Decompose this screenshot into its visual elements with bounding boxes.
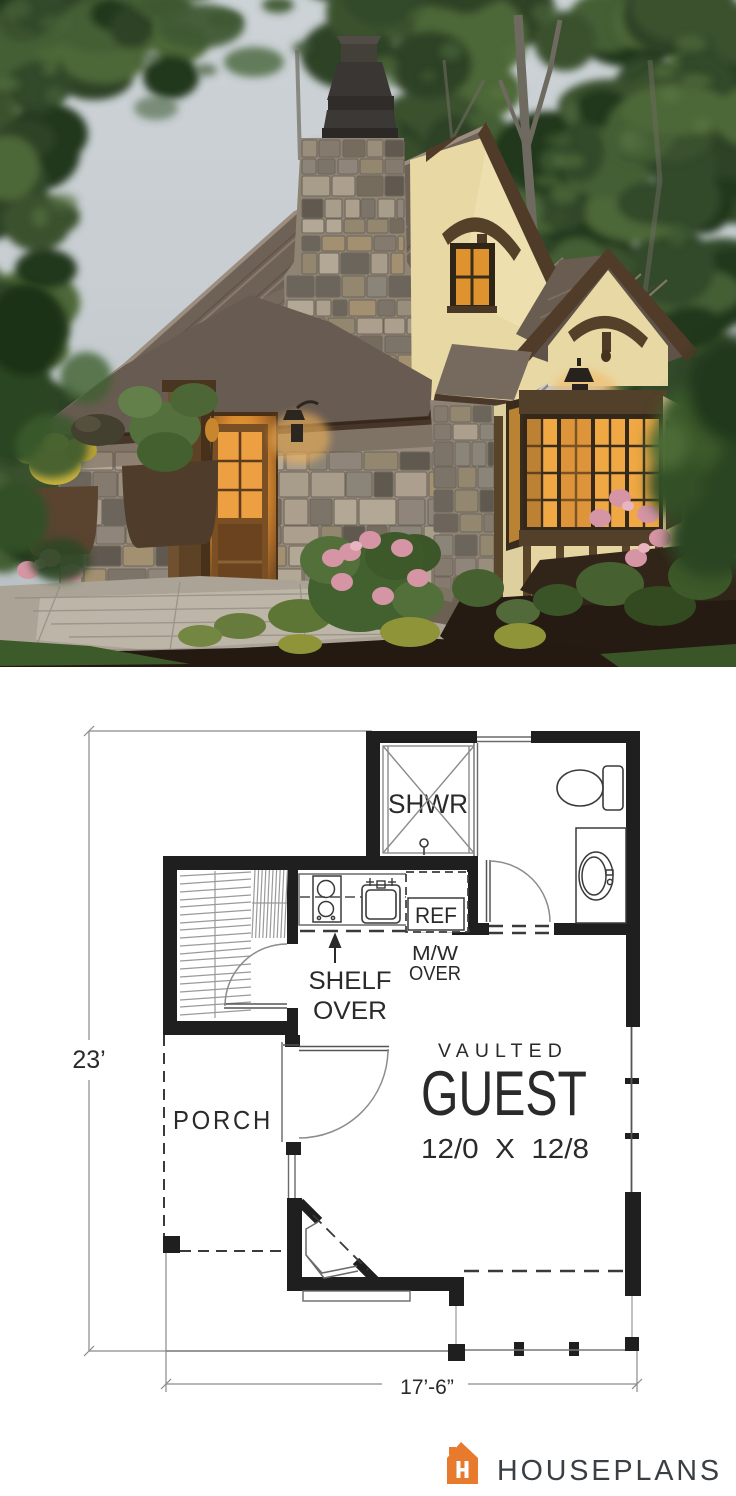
svg-text:PORCH: PORCH bbox=[173, 1105, 273, 1135]
svg-text:SHELF: SHELF bbox=[309, 967, 392, 995]
svg-text:23’: 23’ bbox=[72, 1046, 105, 1074]
svg-text:GUEST: GUEST bbox=[421, 1059, 587, 1129]
svg-text:SHWR: SHWR bbox=[388, 789, 468, 819]
svg-text:HOUSEPLANS: HOUSEPLANS bbox=[497, 1455, 722, 1487]
svg-text:M/W: M/W bbox=[412, 943, 458, 965]
svg-text:OVER: OVER bbox=[409, 963, 461, 985]
svg-text:12/0 X 12/8: 12/0 X 12/8 bbox=[421, 1133, 589, 1164]
svg-text:REF: REF bbox=[415, 903, 457, 928]
svg-text:OVER: OVER bbox=[313, 997, 387, 1025]
svg-text:17’-6”: 17’-6” bbox=[400, 1376, 454, 1399]
